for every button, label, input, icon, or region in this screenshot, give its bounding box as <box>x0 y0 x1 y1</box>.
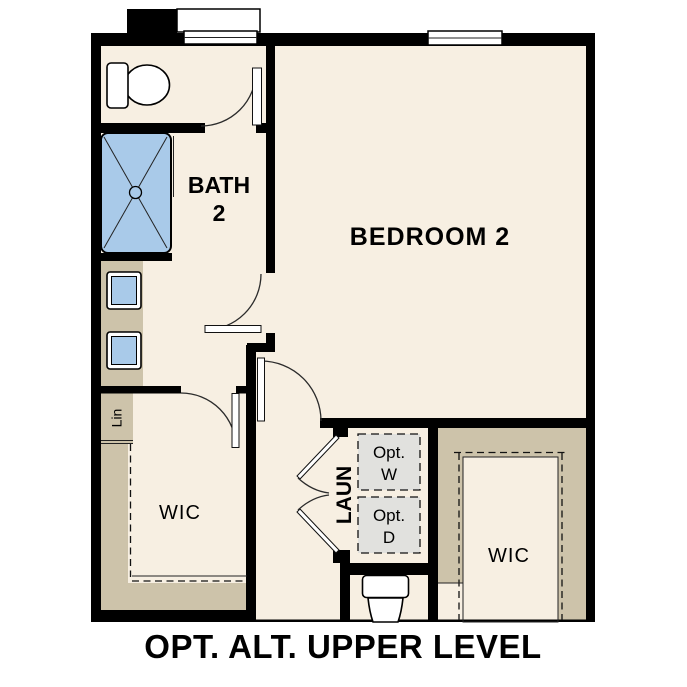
wall-bottom-left <box>91 610 256 622</box>
toilet-upper-tank <box>107 63 128 108</box>
wall-bedroom-south <box>320 418 586 428</box>
wic-left-door-leaf <box>232 394 239 448</box>
wall-hall-west <box>246 345 256 622</box>
shower-drain <box>130 187 142 199</box>
washer-label-line2: W <box>381 465 397 484</box>
bedroom-label: BEDROOM 2 <box>350 223 510 251</box>
wall-bath-south-left <box>91 386 181 394</box>
bath-label-line1: BATH <box>188 172 250 198</box>
wall-laundry-south <box>340 563 433 575</box>
vanity-sink-2-basin <box>112 337 137 365</box>
window-bay-box <box>177 9 260 32</box>
toilet-compartment-door-leaf <box>253 68 262 125</box>
wall-bath-bedroom <box>266 46 275 273</box>
vanity-sink-1-basin <box>112 277 137 305</box>
dryer-label-line2: D <box>383 528 395 547</box>
wall-left <box>91 33 101 622</box>
bath-label-line2: 2 <box>213 200 226 226</box>
toilet-lower-tank <box>363 576 409 598</box>
plan-title: OPT. ALT. UPPER LEVEL <box>144 628 541 665</box>
linen-label: Lin <box>109 409 125 428</box>
wic-right-label: WIC <box>488 545 530 567</box>
wic-left-shelf-side <box>101 444 128 583</box>
wall-right <box>586 33 595 622</box>
wic-left-shelf-bottom <box>101 583 247 610</box>
washer-label-line1: Opt. <box>373 443 405 462</box>
bath-door-leaf <box>205 326 261 333</box>
dryer-label-line1: Opt. <box>373 506 405 525</box>
wall-laundry-east <box>428 425 438 622</box>
toilet-lower-bowl <box>368 598 403 622</box>
wall-below-shower <box>91 253 172 261</box>
wall-halfbath-west <box>340 563 350 622</box>
wic-right-interior <box>463 457 558 622</box>
floor-plan-page: BATH 2 BEDROOM 2 WIC WIC Lin LAUN Opt. W… <box>0 0 687 687</box>
wic-left-label: WIC <box>159 502 201 524</box>
wall-top-bump <box>127 9 177 35</box>
laundry-label: LAUN <box>333 466 356 524</box>
wall-toilet-compartment <box>101 123 205 133</box>
toilet-upper-bowl <box>125 65 170 105</box>
floor-plan-drawing: BATH 2 BEDROOM 2 WIC WIC Lin LAUN Opt. W… <box>0 0 687 687</box>
wall-top <box>91 33 595 46</box>
bedroom-door-leaf <box>258 358 265 421</box>
